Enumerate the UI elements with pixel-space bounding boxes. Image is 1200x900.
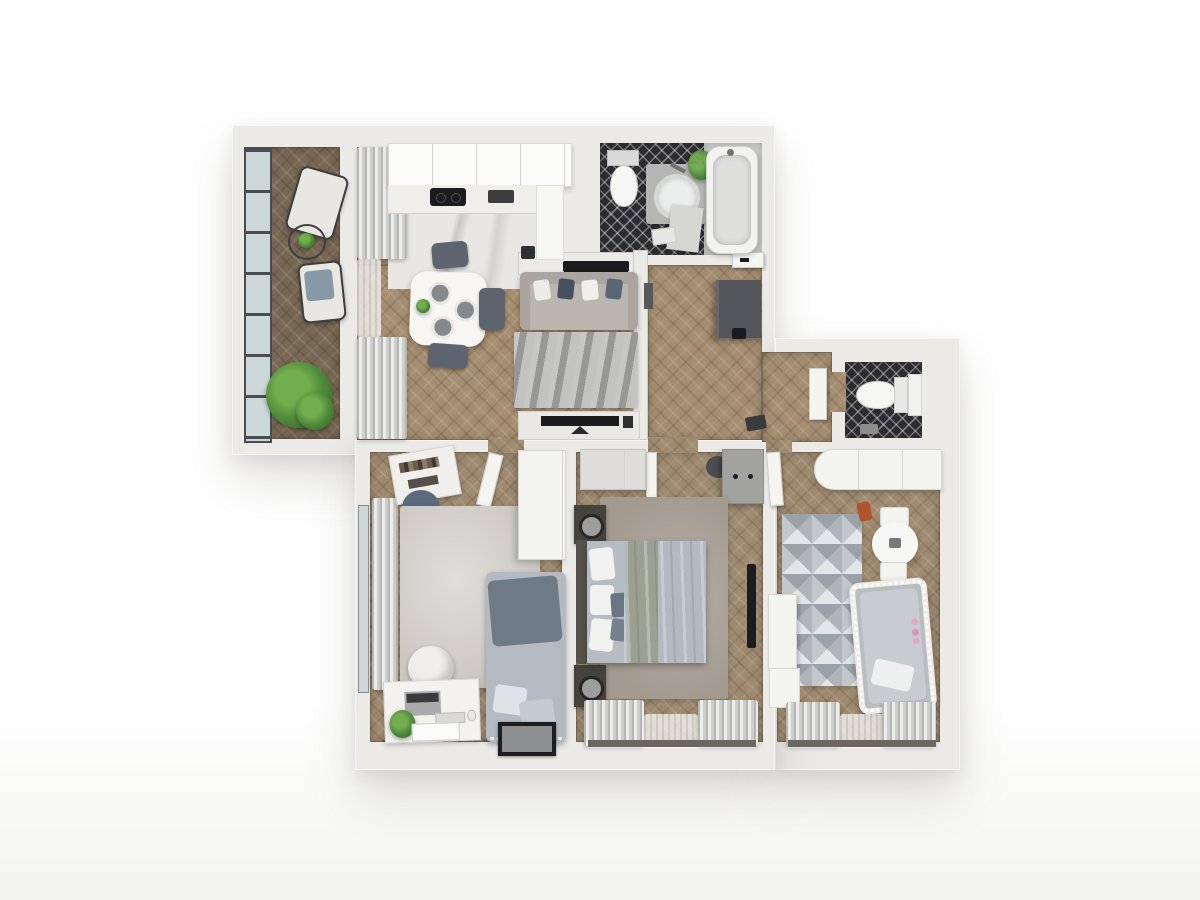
bathroom-door — [732, 252, 764, 268]
table-flowers — [416, 299, 430, 313]
nursery-cabinet-1 — [768, 594, 797, 670]
bedroom-window-sill — [588, 740, 756, 747]
shelf-items — [408, 475, 439, 489]
bedroom-wardrobe — [580, 449, 646, 490]
table-lamp — [579, 676, 604, 701]
bedroom-door-opening — [648, 437, 698, 453]
table-plant — [298, 233, 315, 248]
balcony-plant-2 — [296, 392, 334, 430]
bedroom-dresser — [722, 449, 764, 504]
hall-wall-item — [644, 283, 653, 309]
plate — [428, 281, 452, 305]
toilet-tank — [607, 150, 639, 166]
tv-screen — [541, 416, 619, 426]
shelf-books — [399, 456, 440, 473]
wc-door-leaf — [809, 368, 827, 420]
kitchen-counter — [388, 185, 560, 214]
office-floor-picture — [498, 722, 556, 756]
tv-bench — [518, 411, 640, 440]
office-wardrobe — [518, 450, 566, 560]
dining-chair-top — [431, 240, 469, 269]
table-toy — [889, 538, 901, 548]
crib — [848, 577, 937, 715]
bed-blanket — [628, 541, 658, 663]
entry-bag — [732, 328, 746, 339]
coffee-machine — [521, 246, 535, 259]
burner — [436, 193, 446, 203]
sofa-pillow — [581, 279, 599, 300]
kitchen-counter-right-arm — [536, 185, 564, 260]
tv-stand — [571, 426, 589, 434]
play-table — [872, 522, 918, 566]
faucet — [670, 162, 686, 173]
tub-basin — [713, 155, 751, 245]
dresser-knob — [748, 474, 753, 479]
sofa-pillow — [557, 278, 575, 300]
office-left-window — [358, 505, 369, 693]
sofa-armrest — [520, 272, 530, 330]
wc-toilet-bowl — [856, 381, 896, 409]
wc-cistern-panel — [908, 374, 922, 416]
office-desk — [383, 678, 481, 743]
table-lamp — [579, 514, 604, 539]
plate — [454, 298, 478, 322]
laptop-screen — [406, 693, 438, 703]
cooktop — [430, 188, 466, 206]
dining-chair-bottom — [427, 343, 469, 370]
wc-door-opening — [830, 372, 846, 412]
bedroom-wall-tv — [747, 564, 756, 648]
nook-rug — [514, 332, 638, 408]
office-daybed — [486, 572, 566, 742]
kitchen-cabinets — [388, 143, 572, 187]
dining-chair-right — [479, 288, 505, 330]
kitchen-sink-module — [488, 190, 514, 203]
bed-mattress — [587, 541, 706, 663]
sofa-pillow — [605, 278, 623, 300]
daybed-throw — [487, 575, 562, 647]
mouse — [467, 709, 476, 721]
balcony-armchair-2 — [297, 260, 347, 324]
bench-decor — [623, 416, 633, 428]
dresser-knob — [733, 474, 738, 479]
bed-headboard — [576, 540, 587, 664]
kitchen-curtain-bottom — [357, 337, 407, 439]
wc-accessory — [860, 424, 878, 434]
dining-table — [409, 271, 488, 348]
nook-sofa — [520, 272, 638, 330]
wc-toilet-tank — [894, 377, 908, 413]
tub-faucet — [727, 149, 734, 156]
sofa-pillow — [533, 279, 552, 301]
sofa-armrest — [628, 272, 638, 330]
burner — [451, 193, 461, 203]
nook-wall-shelf — [563, 261, 629, 272]
balcony-coffee-table — [288, 224, 326, 260]
floor-plan-render — [0, 0, 1200, 900]
towel-stool — [651, 226, 677, 245]
string-lights — [851, 579, 936, 713]
nursery-wardrobe — [814, 449, 942, 490]
bathroom-door-handle — [740, 258, 749, 262]
nursery-window-sill — [788, 740, 936, 747]
plate — [431, 315, 455, 339]
armchair-cushion — [304, 269, 335, 302]
bed-pillow — [588, 547, 615, 581]
desk-drawers — [411, 722, 460, 742]
kitchen-curtain-sheer — [357, 259, 381, 337]
bathtub — [706, 146, 758, 254]
nightstand-top — [574, 505, 606, 544]
toilet-bowl — [610, 165, 638, 207]
office-curtains — [372, 498, 398, 690]
